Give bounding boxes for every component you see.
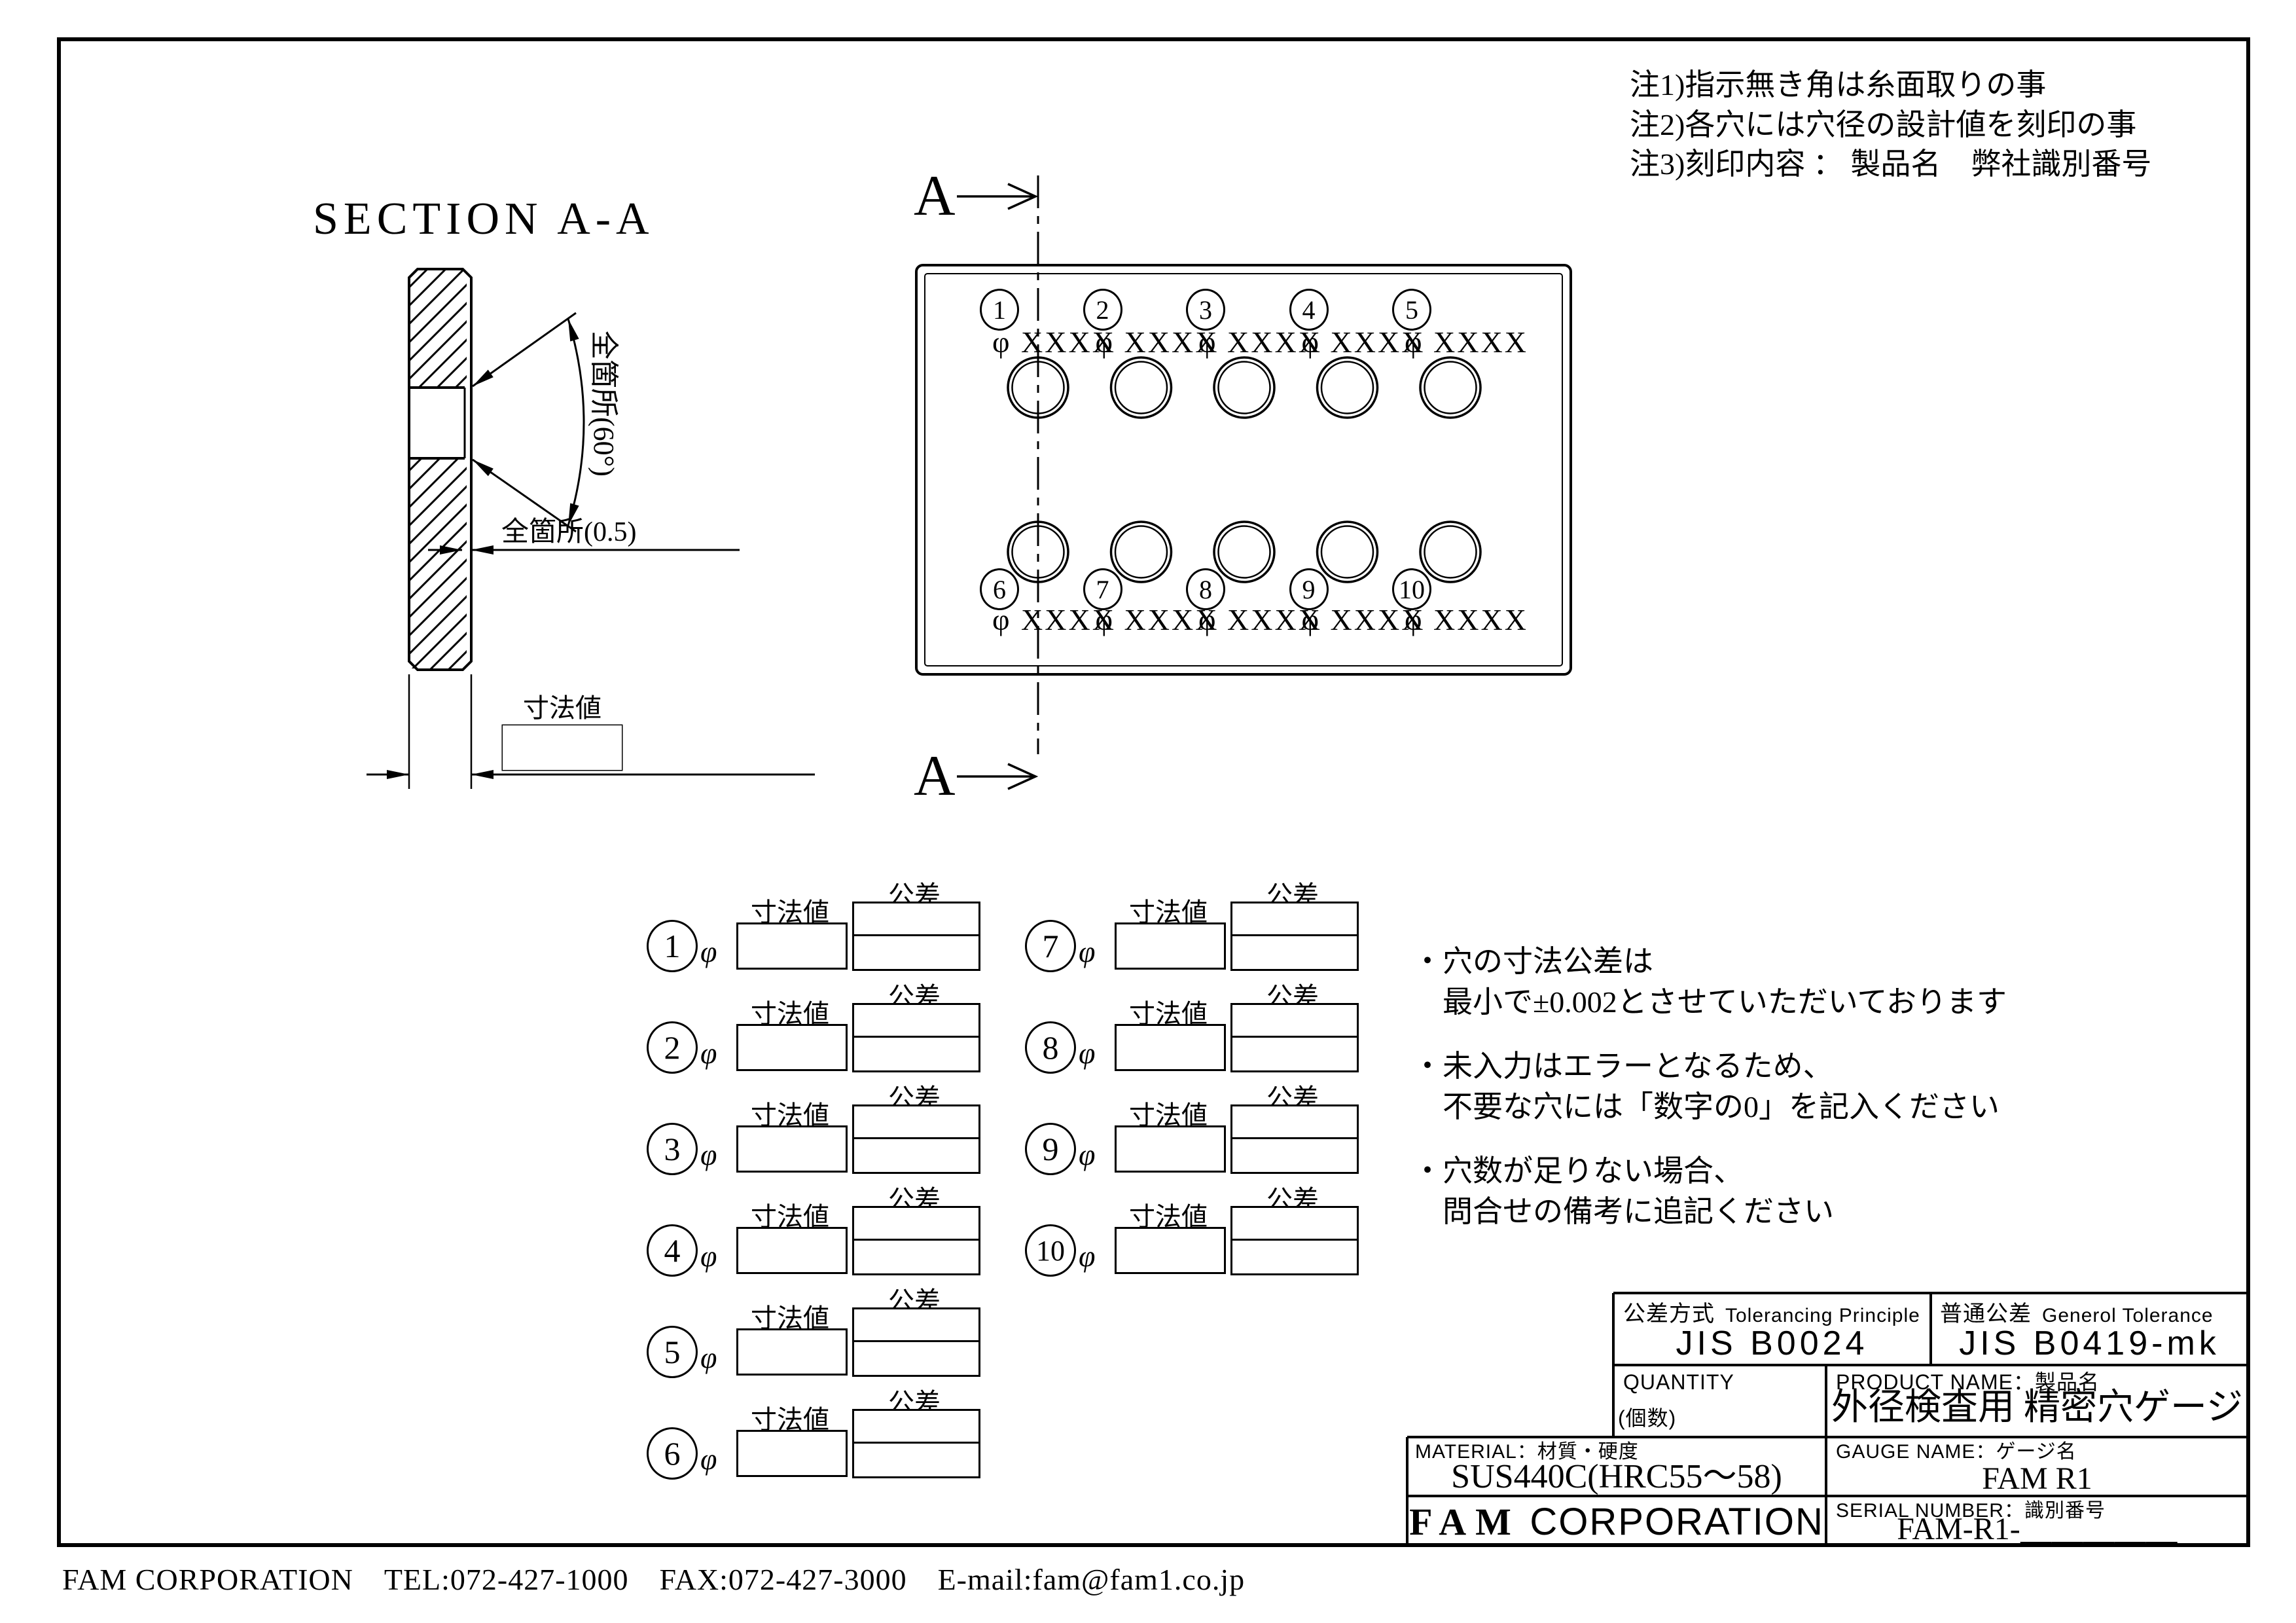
- dimension-arrowhead: [473, 370, 493, 386]
- phi-symbol: φ: [700, 1036, 717, 1070]
- spec-dimension-box[interactable]: [736, 1227, 848, 1274]
- side-note-line: ・穴の寸法公差は: [1412, 941, 2007, 982]
- quantity-sub-label: (個数): [1618, 1408, 1676, 1429]
- phi-symbol: φ: [700, 1239, 717, 1273]
- gauge-hole-inner: [1425, 362, 1477, 414]
- gauge-holes: [1008, 357, 1480, 582]
- general-tolerance-label-en: Generol Tolerance: [2042, 1306, 2214, 1326]
- side-note: ・穴数が足りない場合、 問合せの備考に追記ください: [1412, 1151, 1834, 1232]
- spec-dimension-box[interactable]: [736, 1125, 848, 1173]
- spec-dimension-box[interactable]: [1115, 1024, 1226, 1071]
- section-marker-top: A: [914, 168, 956, 225]
- gauge-hole-outer: [1111, 522, 1172, 582]
- side-note-line: 不要な穴には「数字の0」を記入ください: [1412, 1087, 2000, 1127]
- hole-diameter-label: φ XXXX: [1405, 327, 1528, 357]
- spec-tolerance-box-lower[interactable]: [1230, 1036, 1359, 1072]
- company-logo: FAM CORPORATION: [1407, 1503, 1826, 1541]
- phi-symbol: φ: [1079, 1137, 1095, 1172]
- spec-tolerance-box-lower[interactable]: [1230, 934, 1359, 971]
- chamfer-depth-label: 全箇所(0.5): [501, 519, 636, 546]
- dimension-arrowhead: [471, 770, 493, 779]
- side-note-line: 問合せの備考に追記ください: [1412, 1192, 1834, 1232]
- spec-tolerance-box-upper[interactable]: [852, 1206, 980, 1243]
- gauge-name-value: FAM R1: [1826, 1463, 2248, 1495]
- spec-tolerance-box-lower[interactable]: [852, 1442, 980, 1478]
- spec-tolerance-box-upper[interactable]: [852, 1104, 980, 1141]
- side-note-line: 最小で±0.002とさせていただいております: [1412, 982, 2007, 1023]
- tolerancing-label-en: Tolerancing Principle: [1725, 1306, 1920, 1326]
- dimension-arrowhead: [471, 545, 493, 555]
- dimension-arrowhead: [387, 770, 409, 779]
- note-line: 注3)刻印内容 ： 製品名 弊社識別番号: [1630, 145, 2151, 185]
- drawing-sheet: 注1)指示無き角は糸面取りの事 注2)各穴には穴径の設計値を刻印の事 注3)刻印…: [0, 0, 2296, 1623]
- spec-row-number-badge: 10: [1025, 1224, 1076, 1277]
- general-notes: 注1)指示無き角は糸面取りの事 注2)各穴には穴径の設計値を刻印の事 注3)刻印…: [1630, 65, 2151, 185]
- hole-number-badge: 4: [1289, 289, 1329, 331]
- spec-tolerance-box-lower[interactable]: [852, 1137, 980, 1174]
- dimension-arrowhead: [568, 319, 579, 342]
- hole-number-badge: 3: [1186, 289, 1225, 331]
- spec-dimension-box[interactable]: [736, 1024, 848, 1071]
- spec-tolerance-box-lower[interactable]: [852, 934, 980, 971]
- gauge-name-label: GAUGE NAME：ゲージ名: [1836, 1442, 2077, 1462]
- company-logo-rest: CORPORATION: [1530, 1501, 1824, 1543]
- phi-symbol: φ: [700, 1340, 717, 1375]
- gauge-hole-outer: [1420, 522, 1480, 582]
- company-logo-bold: FAM: [1409, 1501, 1520, 1543]
- spec-dimension-box[interactable]: [736, 1430, 848, 1477]
- gauge-hole-inner: [1115, 362, 1167, 414]
- spec-tolerance-box-upper[interactable]: [1230, 1104, 1359, 1141]
- gauge-hole-inner: [1219, 526, 1270, 578]
- gauge-hole-inner: [1115, 526, 1167, 578]
- phi-symbol: φ: [1079, 1239, 1095, 1273]
- spec-row-number-badge: 7: [1025, 920, 1076, 972]
- spec-dimension-box[interactable]: [736, 922, 848, 970]
- spec-tolerance-box-lower[interactable]: [852, 1340, 980, 1377]
- spec-tolerance-box-upper[interactable]: [1230, 902, 1359, 938]
- side-note: ・未入力はエラーとなるため、 不要な穴には「数字の0」を記入ください: [1412, 1046, 2000, 1127]
- section-marker-bottom: A: [914, 748, 956, 805]
- spec-tolerance-box-lower[interactable]: [852, 1036, 980, 1072]
- spec-tolerance-box-lower[interactable]: [852, 1239, 980, 1275]
- spec-row-number-badge: 9: [1025, 1123, 1076, 1175]
- spec-tolerance-box-upper[interactable]: [852, 1409, 980, 1446]
- general-tolerance-label-jp: 普通公差: [1940, 1303, 2032, 1325]
- spec-tolerance-box-upper[interactable]: [852, 902, 980, 938]
- spec-row-number-badge: 2: [647, 1021, 698, 1074]
- thickness-value-box[interactable]: [503, 725, 622, 770]
- general-tolerance-value: JIS B0419-mk: [1931, 1326, 2248, 1360]
- tolerancing-label-jp: 公差方式: [1623, 1303, 1715, 1325]
- gauge-hole-outer: [1420, 357, 1480, 418]
- note-line: 注1)指示無き角は糸面取りの事: [1630, 65, 2151, 105]
- gauge-hole-inner: [1321, 362, 1373, 414]
- gauge-hole-outer: [1214, 522, 1274, 582]
- spec-row-number-badge: 1: [647, 920, 698, 972]
- spec-dimension-box[interactable]: [736, 1328, 848, 1376]
- dimension-arrowhead: [473, 460, 493, 476]
- spec-row-number-badge: 6: [647, 1427, 698, 1480]
- gauge-hole-outer: [1318, 522, 1378, 582]
- spec-tolerance-box-lower[interactable]: [1230, 1137, 1359, 1174]
- spec-row-number-badge: 4: [647, 1224, 698, 1277]
- phi-symbol: φ: [700, 1442, 717, 1476]
- hole-number-badge: 2: [1083, 289, 1122, 331]
- hole-diameter-label: φ XXXX: [1405, 605, 1528, 635]
- gauge-hole-inner: [1425, 526, 1477, 578]
- gauge-hole-inner: [1219, 362, 1270, 414]
- plate-outline: [916, 175, 1571, 789]
- phi-symbol: φ: [700, 934, 717, 969]
- tolerancing-value: JIS B0024: [1613, 1326, 1931, 1360]
- serial-number-value: FAM-R1-＿＿＿＿＿: [1826, 1514, 2248, 1545]
- note-line: 注2)各穴には穴径の設計値を刻印の事: [1630, 105, 2151, 145]
- hole-number-badge: 1: [980, 289, 1019, 331]
- quantity-label: QUANTITY: [1623, 1372, 1734, 1393]
- spec-row-number-badge: 5: [647, 1326, 698, 1378]
- gauge-hole-outer: [1214, 357, 1274, 418]
- spec-tolerance-box-upper[interactable]: [1230, 1003, 1359, 1040]
- thickness-label: 寸法値: [503, 695, 622, 721]
- hole-number-badge: 5: [1392, 289, 1431, 331]
- product-name-value: 外径検査用 精密穴ゲージ: [1826, 1389, 2248, 1426]
- side-note-line: ・未入力はエラーとなるため、: [1412, 1046, 2000, 1087]
- phi-symbol: φ: [1079, 1036, 1095, 1070]
- spec-tolerance-box-upper[interactable]: [852, 1003, 980, 1040]
- side-note-line: ・穴数が足りない場合、: [1412, 1151, 1834, 1192]
- spec-dimension-box[interactable]: [1115, 1125, 1226, 1173]
- material-value: SUS440C(HRC55～58): [1407, 1460, 1826, 1494]
- spec-tolerance-box-lower[interactable]: [1230, 1239, 1359, 1275]
- phi-symbol: φ: [1079, 934, 1095, 969]
- gauge-hole-outer: [1318, 357, 1378, 418]
- phi-symbol: φ: [700, 1137, 717, 1172]
- section-view-title: SECTION A-A: [313, 196, 655, 242]
- spec-row-number-badge: 8: [1025, 1021, 1076, 1074]
- footer-contact: FAM CORPORATION TEL:072-427-1000 FAX:072…: [62, 1565, 1245, 1595]
- spec-row-number-badge: 3: [647, 1123, 698, 1175]
- spec-tolerance-box-upper[interactable]: [1230, 1206, 1359, 1243]
- chamfer-angle-label: 全箇所(60°): [589, 331, 618, 477]
- side-note: ・穴の寸法公差は 最小で±0.002とさせていただいております: [1412, 941, 2007, 1023]
- spec-dimension-box[interactable]: [1115, 1227, 1226, 1274]
- gauge-hole-inner: [1321, 526, 1373, 578]
- spec-dimension-box[interactable]: [1115, 922, 1226, 970]
- gauge-hole-outer: [1111, 357, 1172, 418]
- spec-tolerance-box-upper[interactable]: [852, 1307, 980, 1344]
